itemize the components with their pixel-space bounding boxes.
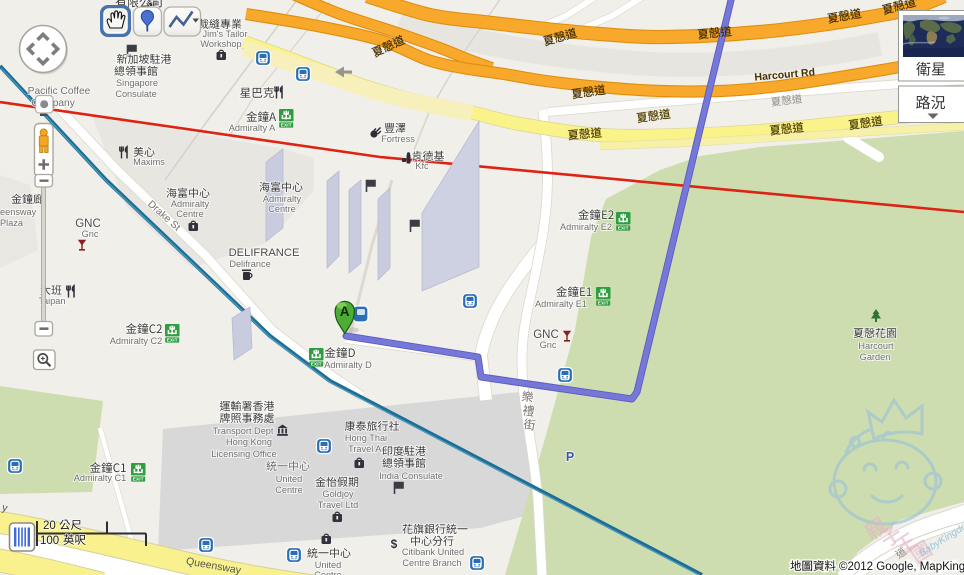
svg-text:100: 100: [40, 535, 59, 547]
svg-text:20: 20: [43, 520, 56, 532]
svg-text:©2012 Google, MapKing -: ©2012 Google, MapKing -: [839, 561, 964, 573]
